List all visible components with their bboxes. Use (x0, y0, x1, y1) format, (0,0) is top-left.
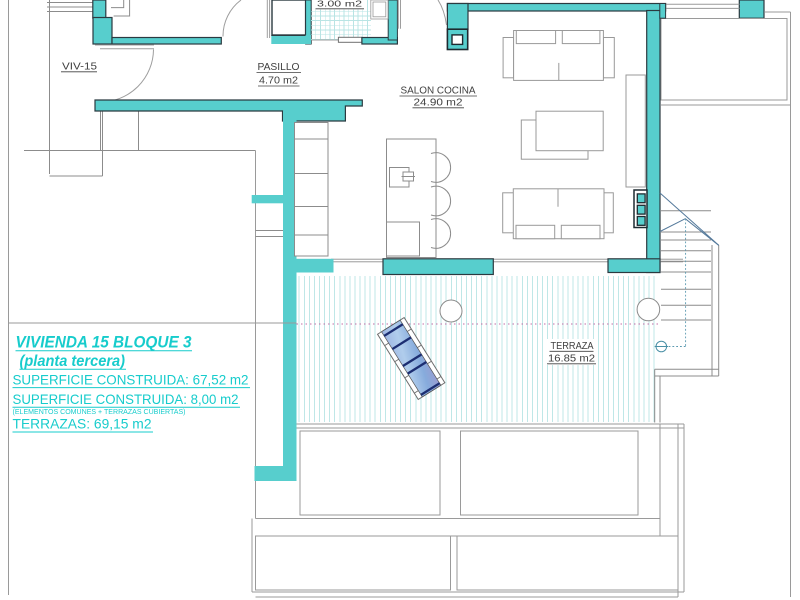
svg-text:VIVIENDA 15 BLOQUE 3: VIVIENDA 15 BLOQUE 3 (16, 334, 192, 352)
svg-text:TERRAZAS: 69,15 m2: TERRAZAS: 69,15 m2 (13, 416, 152, 432)
svg-text:SUPERFICIE CONSTRUIDA: 8,00 m2: SUPERFICIE CONSTRUIDA: 8,00 m2 (13, 391, 239, 407)
svg-text:(planta tercera): (planta tercera) (20, 353, 126, 370)
svg-text:(ELEMENTOS COMUNES + TERRAZAS: (ELEMENTOS COMUNES + TERRAZAS CUBIERTAS) (13, 407, 186, 416)
svg-text:16.85 m2: 16.85 m2 (548, 354, 595, 365)
svg-text:TERRAZA: TERRAZA (551, 341, 594, 352)
svg-text:SUPERFICIE CONSTRUIDA: 67,52 m: SUPERFICIE CONSTRUIDA: 67,52 m2 (13, 372, 249, 388)
svg-text:VIV-15: VIV-15 (62, 61, 97, 73)
svg-text:3.00 m2: 3.00 m2 (317, 0, 362, 9)
svg-text:24.90 m2: 24.90 m2 (414, 97, 463, 109)
svg-text:4.70 m2: 4.70 m2 (259, 75, 298, 87)
svg-text:PASILLO: PASILLO (258, 61, 300, 73)
svg-text:SALON COCINA: SALON COCINA (401, 85, 476, 97)
